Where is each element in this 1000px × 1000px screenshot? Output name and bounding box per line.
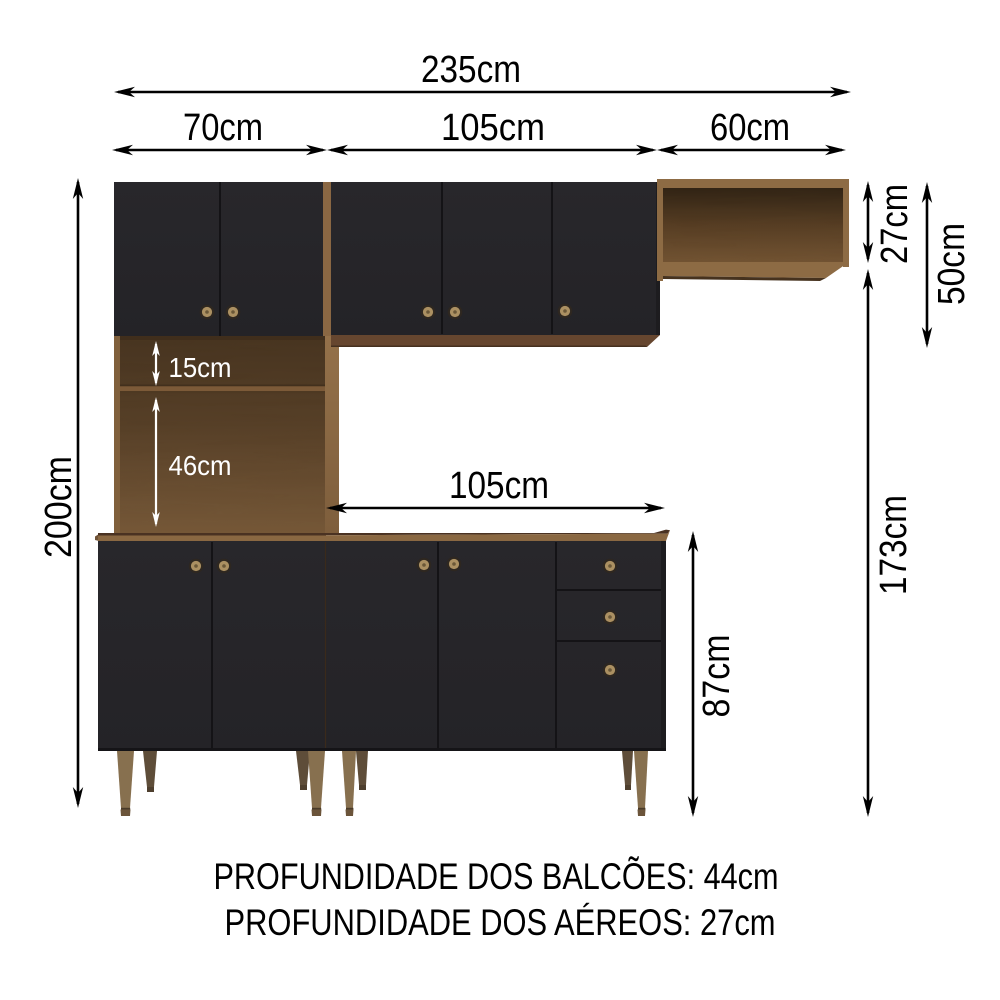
svg-text:235cm: 235cm	[421, 49, 521, 91]
svg-text:105cm: 105cm	[449, 465, 549, 507]
svg-text:PROFUNDIDADE DOS AÉREOS: 27cm: PROFUNDIDADE DOS AÉREOS: 27cm	[225, 902, 776, 943]
svg-text:PROFUNDIDADE DOS BALCÕES: 44cm: PROFUNDIDADE DOS BALCÕES: 44cm	[214, 856, 779, 897]
svg-text:27cm: 27cm	[874, 184, 916, 264]
svg-text:60cm: 60cm	[710, 107, 790, 149]
svg-text:105cm: 105cm	[441, 107, 545, 149]
svg-text:50cm: 50cm	[931, 223, 973, 305]
svg-text:200cm: 200cm	[38, 456, 80, 558]
svg-text:70cm: 70cm	[183, 107, 263, 149]
svg-text:87cm: 87cm	[696, 635, 738, 718]
svg-text:173cm: 173cm	[873, 495, 915, 595]
svg-text:15cm: 15cm	[169, 352, 232, 383]
svg-text:46cm: 46cm	[169, 450, 232, 481]
